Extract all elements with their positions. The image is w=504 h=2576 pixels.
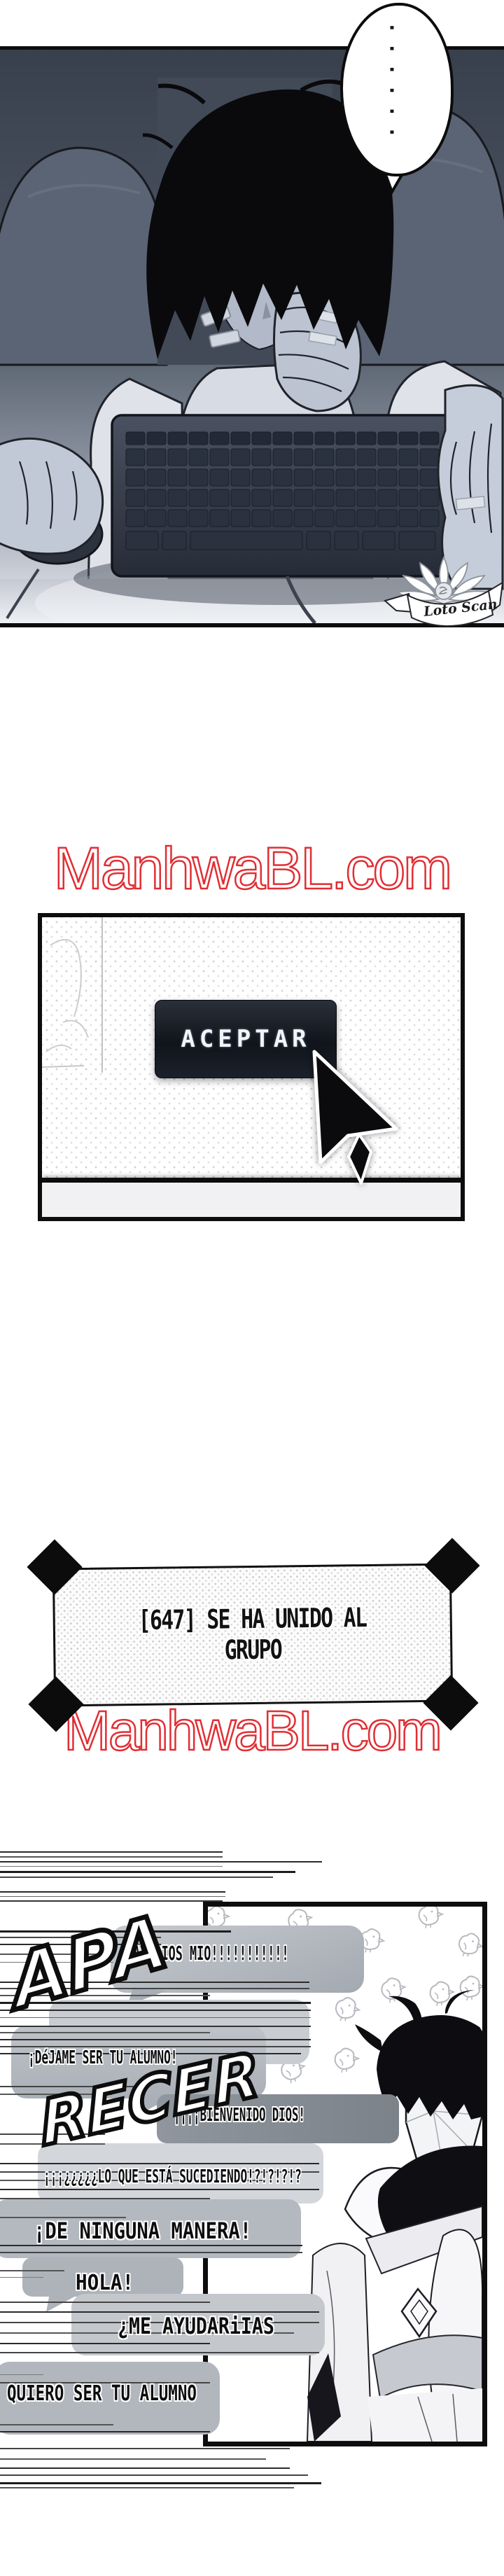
speed-line xyxy=(0,2352,319,2353)
masked-character xyxy=(307,1990,482,2442)
speed-line xyxy=(0,1871,295,1873)
speed-line xyxy=(0,2424,113,2425)
speed-line xyxy=(0,2302,210,2303)
speed-line xyxy=(0,2245,302,2246)
speed-line xyxy=(0,1900,223,1902)
speed-line xyxy=(0,2458,266,2460)
bubble-text: QUIERO SER TU ALUMNO xyxy=(7,2383,197,2404)
faint-hand-sketch xyxy=(42,917,119,1078)
bubble-text: ¿ME AYUDARiIAS xyxy=(118,2315,274,2337)
system-message-line2: GRUPO xyxy=(224,1635,281,1666)
speed-line xyxy=(0,1877,273,1878)
bubble-text: HOLA! xyxy=(76,2273,134,2294)
thought-bubble: ...... xyxy=(340,3,454,176)
speed-line xyxy=(0,2448,290,2449)
speed-line xyxy=(0,1861,322,1863)
bubble-text: ¡¡¡¿¿¿¿¿LO QUE ESTÁ SUCEDIENDO!?!?!?!? xyxy=(43,2168,302,2186)
system-dialog: [647] SE HA UNIDO AL GRUPO xyxy=(52,1564,453,1707)
site-watermark: ManhwaBL.com xyxy=(0,835,504,903)
cursor-arrow-icon xyxy=(276,1028,416,1196)
bubble-text: ¡DE NINGUNA MANERA! xyxy=(34,2220,251,2242)
speed-line xyxy=(0,2189,319,2190)
ellipsis-dots: ...... xyxy=(386,22,409,147)
finger-bandage xyxy=(456,496,484,510)
speed-line xyxy=(0,1866,223,1867)
speed-line xyxy=(0,2252,302,2253)
speed-line xyxy=(0,2482,321,2484)
speed-line xyxy=(0,2270,64,2271)
speed-line xyxy=(0,2467,290,2469)
loto-scan-logo: Loto Scan xyxy=(384,552,504,650)
speed-line xyxy=(0,2026,311,2027)
speed-line xyxy=(0,2374,43,2375)
speed-line xyxy=(0,2163,319,2164)
speed-line xyxy=(0,1851,223,1853)
speed-line xyxy=(0,1896,225,1897)
speed-line xyxy=(0,1891,225,1893)
speed-line xyxy=(0,2198,210,2199)
speed-line xyxy=(0,2032,210,2033)
speed-line xyxy=(0,2277,43,2278)
speed-line xyxy=(0,1856,223,1858)
speed-line xyxy=(0,2474,308,2476)
speed-line xyxy=(0,2487,294,2488)
speed-line xyxy=(0,2431,210,2432)
comic-page: ...... Loto Scan ManhwaBL.com xyxy=(0,0,504,2576)
system-message-line1: [647] SE HA UNIDO AL xyxy=(139,1603,367,1636)
speed-line xyxy=(0,2039,311,2040)
speed-line xyxy=(0,2343,210,2344)
